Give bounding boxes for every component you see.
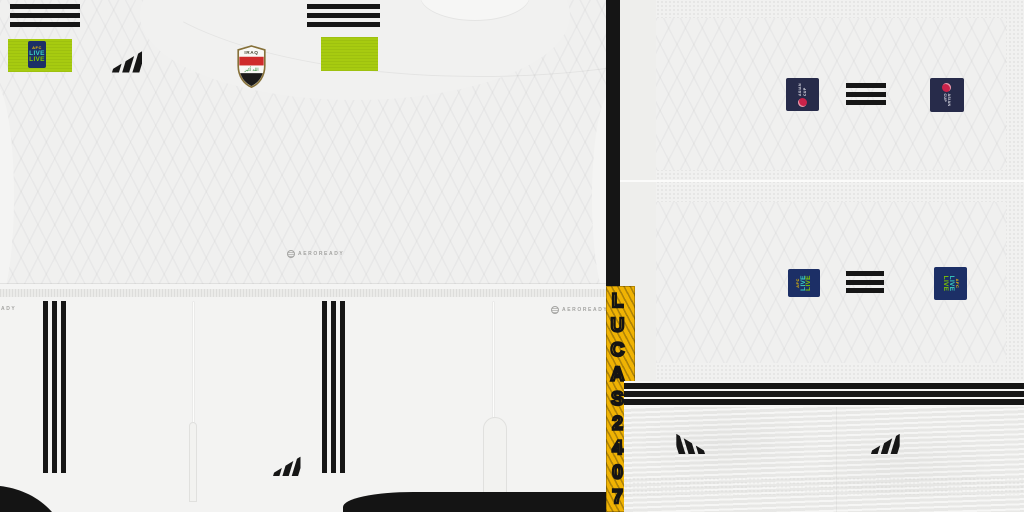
adidas-logo-mirrored-icon [676,433,710,454]
cuff-band-bg [624,381,1024,407]
kit-texture-sheet: AFC LIVE LIVE IRAQ ال [0,0,1024,512]
adidas-three-stripes-cuff-icon [624,383,1024,405]
sock-ribbed-band [624,477,1024,495]
sock-seam [836,407,837,512]
adidas-logo-icon [866,433,900,454]
socks-panel [0,0,1024,512]
sock-fabric [624,407,1024,512]
